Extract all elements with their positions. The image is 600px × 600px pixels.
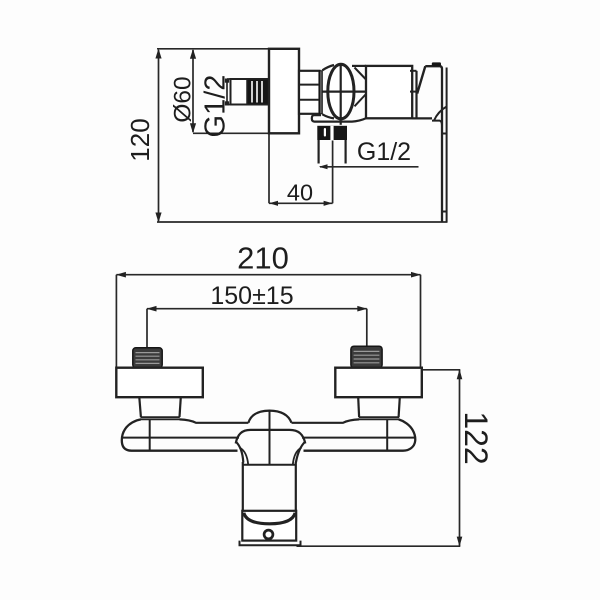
svg-text:210: 210 [237, 241, 289, 276]
svg-text:122: 122 [458, 411, 494, 464]
svg-text:G1/2: G1/2 [357, 138, 411, 166]
svg-text:120: 120 [125, 118, 155, 161]
svg-text:40: 40 [287, 180, 313, 206]
svg-text:150±15: 150±15 [210, 282, 293, 310]
svg-text:G1/2: G1/2 [200, 75, 232, 138]
svg-text:Ø60: Ø60 [170, 76, 197, 122]
